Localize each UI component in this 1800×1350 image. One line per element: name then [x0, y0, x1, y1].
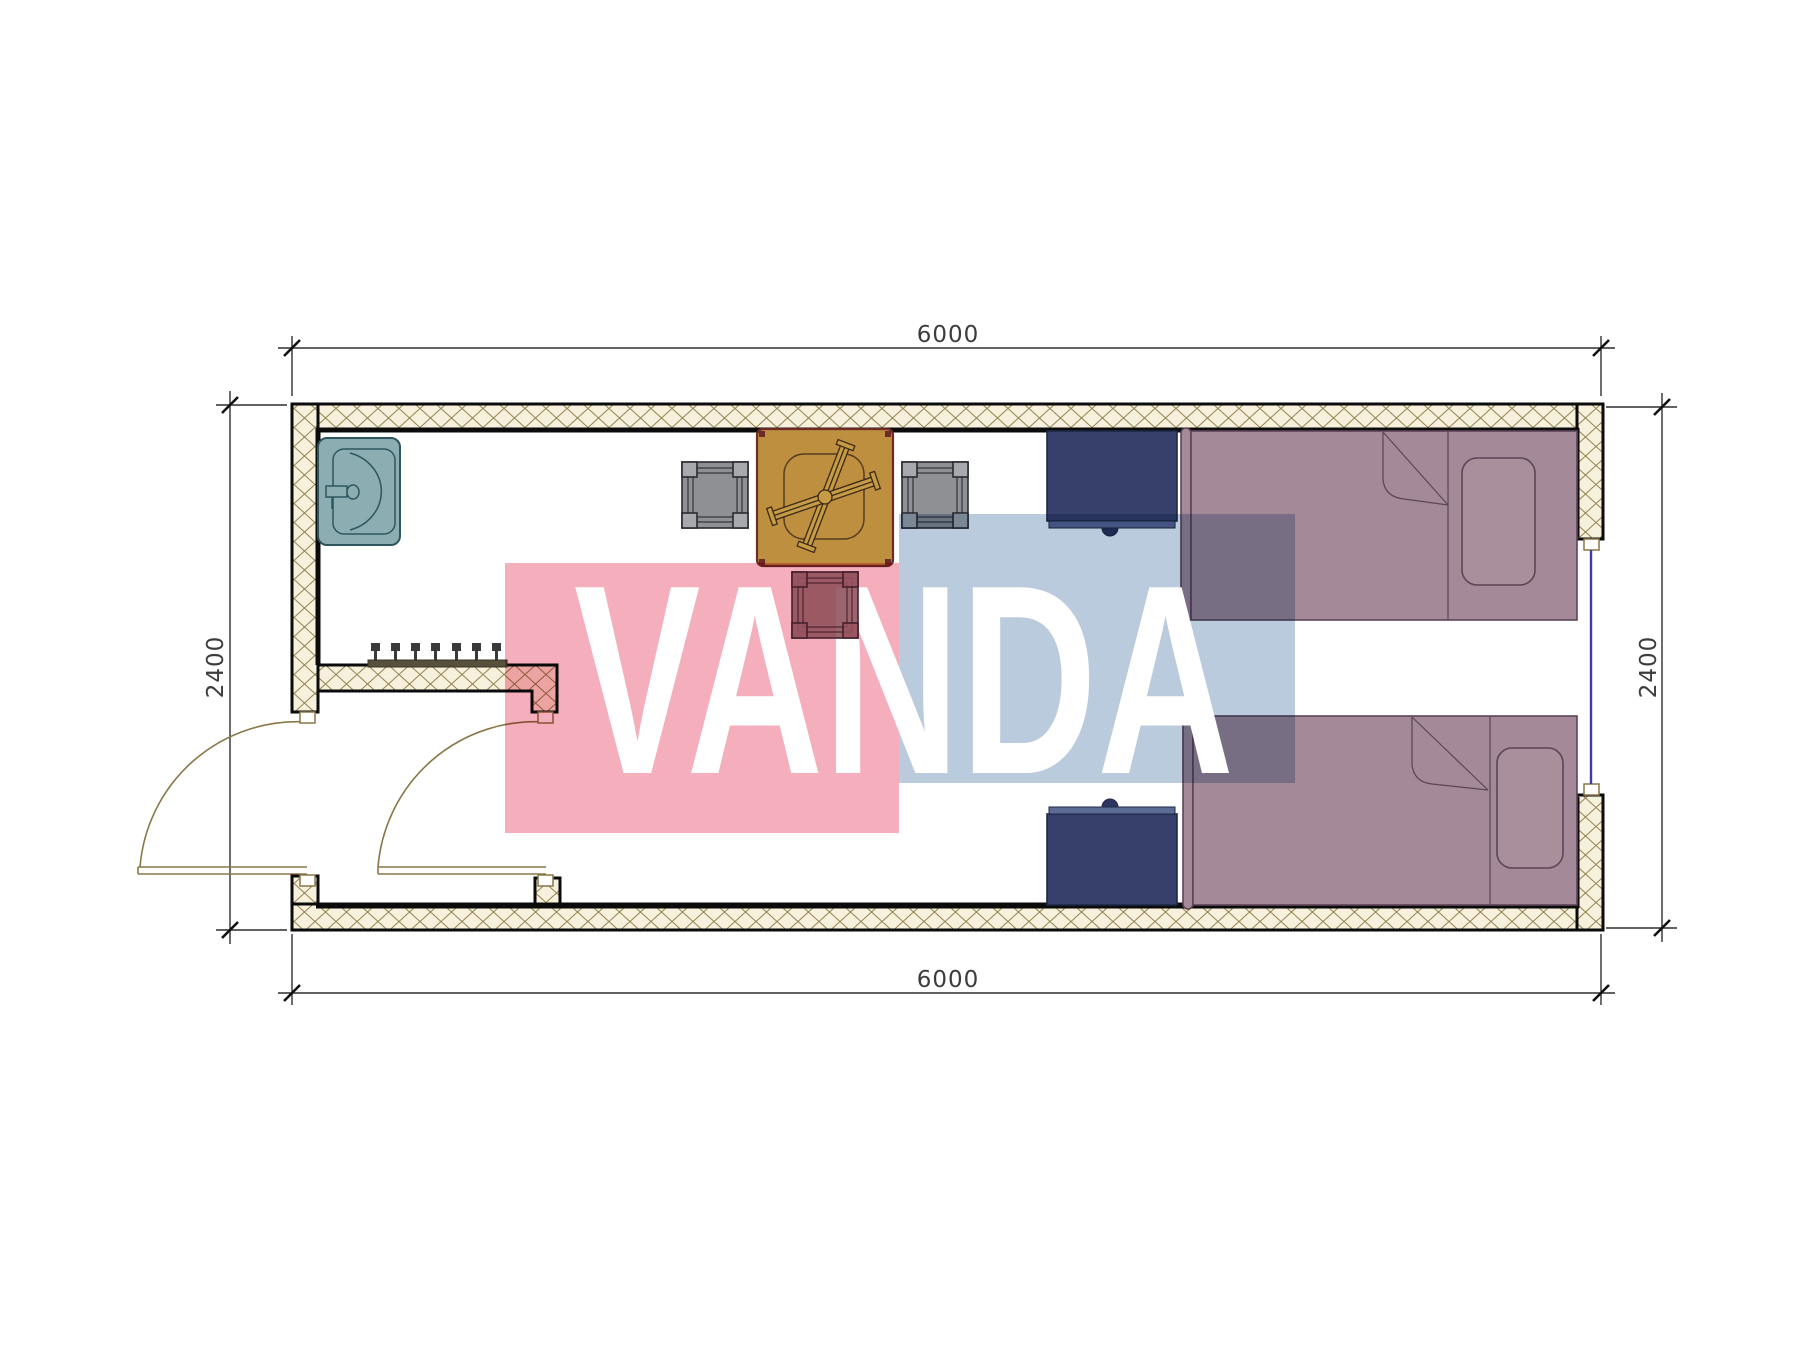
dimension-label-top: 6000: [917, 322, 980, 348]
sink: [318, 438, 400, 545]
stool-gray-left: [682, 462, 748, 528]
dimension-label-bottom: 6000: [917, 967, 980, 993]
coat-rack-hooks: [371, 643, 501, 661]
window-sill-upper: [1584, 539, 1599, 550]
coat-rack: [368, 643, 507, 667]
wall-top: [292, 404, 1602, 430]
bed-pillow: [1462, 458, 1535, 585]
door-exterior-swing: [138, 722, 307, 874]
stool-red: [792, 572, 858, 638]
window-sill-lower: [1584, 784, 1599, 795]
wall-right-upper: [1577, 404, 1603, 539]
dimension-label-left: 2400: [203, 636, 229, 699]
watermark: VANDA: [505, 514, 1295, 833]
window: [1584, 539, 1599, 795]
watermark-text: VANDA: [574, 530, 1234, 831]
bed-pillow: [1497, 748, 1563, 868]
floor-plan-canvas: 6000 6000 2400 2400: [0, 0, 1800, 1350]
dimension-label-right: 2400: [1636, 636, 1662, 699]
sink-faucet: [326, 486, 347, 497]
wall-right-lower: [1577, 795, 1603, 930]
wall-left-upper: [292, 404, 318, 712]
